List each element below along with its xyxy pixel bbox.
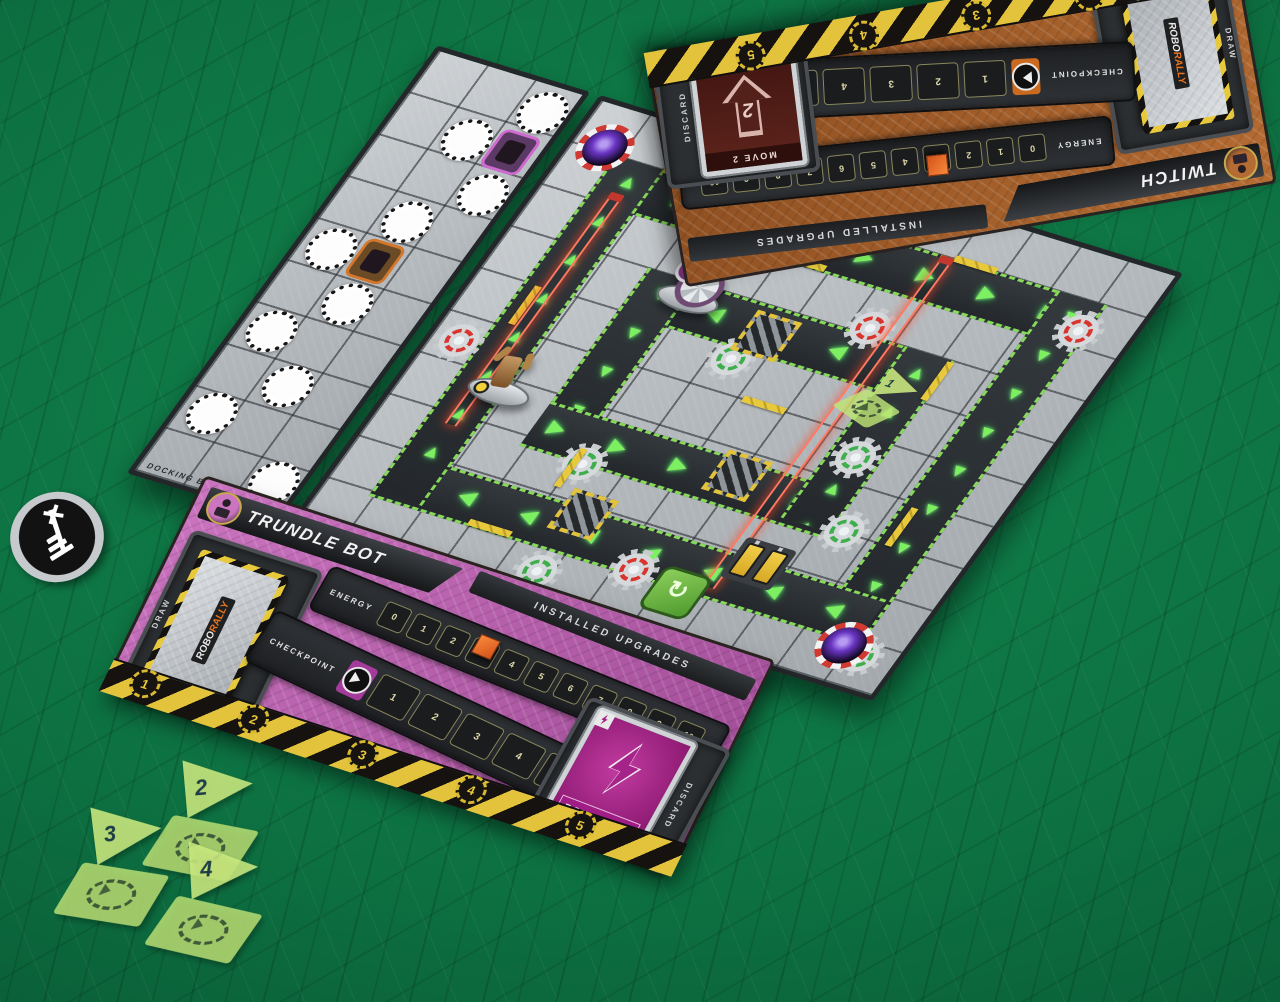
lightning-bolt-icon — [587, 733, 662, 805]
energy-cube[interactable] — [926, 154, 949, 177]
bolt-icon — [593, 710, 616, 730]
energy-cell: 2 — [954, 140, 984, 170]
flag-triangle: 4 — [189, 838, 260, 899]
priority-badge: 5 — [734, 38, 769, 73]
draw-label: DRAW — [1223, 27, 1237, 61]
antenna-icon — [0, 474, 121, 600]
checkpoint-cell: 2 — [916, 62, 960, 100]
draw-deck[interactable]: ROBORALLY — [1119, 0, 1235, 134]
checkpoint-cell: 1 — [963, 60, 1007, 98]
start-position-circle — [311, 278, 384, 331]
energy-cell: 4 — [890, 147, 920, 177]
checkpoint-flag-icon — [1011, 58, 1041, 95]
energy-cell: 0 — [1018, 134, 1048, 164]
wall — [741, 396, 787, 415]
energy-cube[interactable] — [471, 633, 501, 659]
priority-badge: 4 — [451, 772, 493, 808]
gear-flag-print-icon — [79, 876, 144, 913]
deck-card-back: ROBORALLY — [1126, 0, 1228, 127]
docking-bay-pieces — [439, 51, 582, 95]
start-position-circle — [235, 305, 308, 358]
priority-antenna-token[interactable] — [0, 480, 116, 595]
gear-flag-print-icon — [846, 397, 888, 421]
priority-badge: 4 — [846, 18, 881, 53]
flag-triangle: 2 — [183, 754, 256, 818]
gear-flag-print-icon — [170, 910, 236, 949]
priority-badge: 3 — [959, 0, 994, 33]
table-felt: DOCKING BAY B 1 CONCENTRIC TWITCH INSTAL… — [0, 0, 1280, 1002]
flag-base — [144, 895, 263, 964]
start-position-circle — [447, 169, 520, 222]
checkpoint-cell: 3 — [869, 65, 913, 103]
energy-cell: 1 — [986, 137, 1016, 167]
energy-cell: 6 — [827, 154, 857, 184]
checkpoint-flag-4[interactable]: 4 — [149, 837, 286, 972]
start-position-circle — [176, 387, 249, 440]
checkpoint-cell: 4 — [822, 67, 866, 105]
energy-cell: 3 — [922, 144, 952, 174]
discard-label: DISCARD — [677, 92, 692, 143]
twitch-robot-icon — [1221, 143, 1260, 182]
move-arrow-icon: 2 — [719, 72, 776, 140]
energy-cell: 5 — [859, 150, 889, 180]
mini-arm — [521, 353, 535, 370]
priority-badge: 2 — [233, 701, 275, 737]
mat-title: TWITCH — [1138, 158, 1218, 191]
trundle-robot-icon — [200, 488, 247, 529]
roborally-logo: ROBORALLY — [190, 596, 236, 665]
start-position-circle — [251, 360, 324, 413]
priority-badge: 3 — [342, 736, 384, 772]
roborally-logo: ROBORALLY — [1163, 17, 1190, 89]
